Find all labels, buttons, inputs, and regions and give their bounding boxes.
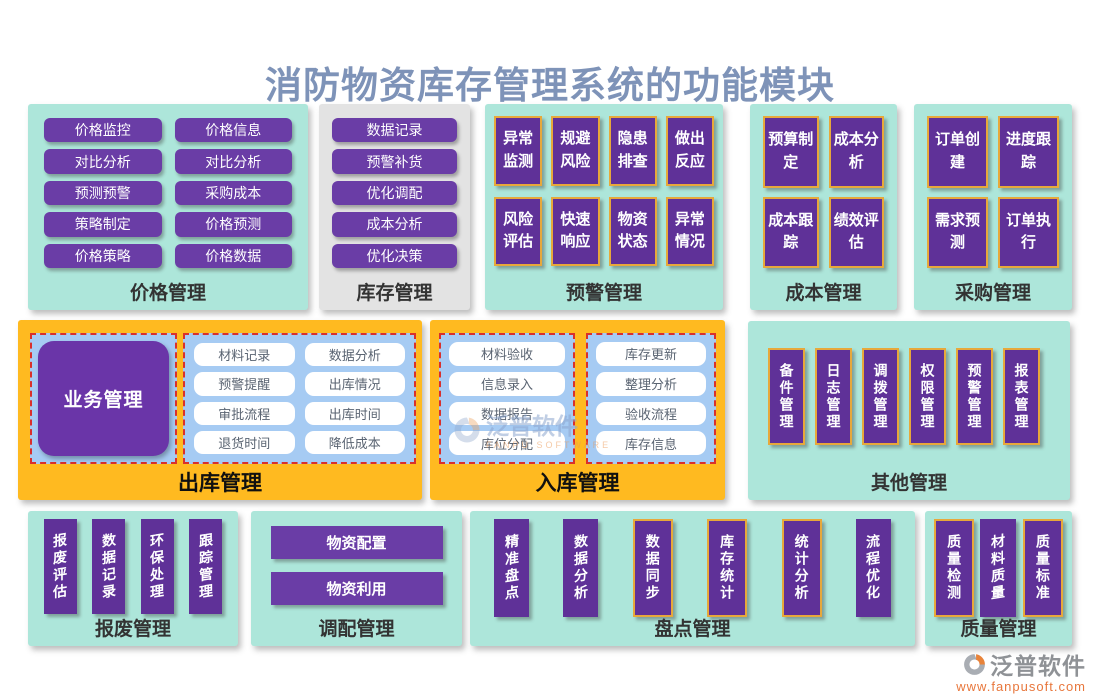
warning-box-grid: 异常监测 规避风险 隐患排查 做出反应 风险评估 快速响应 物资状态 异常情况 — [494, 116, 714, 266]
module-process-optimization: 流程优化 — [856, 519, 891, 617]
fanpu-logo-icon — [962, 652, 987, 677]
module-data-analysis: 数据分析 — [305, 343, 406, 366]
panel-label-inventory: 库存管理 — [319, 278, 470, 305]
module-make-response: 做出反应 — [666, 116, 714, 186]
diagram-canvas: 消防物资库存管理系统的功能模块 价格监控 价格信息 对比分析 对比分析 预测预警… — [0, 0, 1100, 700]
module-info-entry: 信息录入 — [449, 372, 565, 396]
logo-company-name: 泛普软件 — [990, 647, 1086, 681]
panel-label-allocation: 调配管理 — [251, 614, 462, 641]
module-reduce-cost: 降低成本 — [305, 431, 406, 454]
panel-outbound-management: 业务管理 材料记录 数据分析 预警提醒 出库情况 审批流程 出库时间 退货时间 … — [18, 320, 422, 500]
module-warning-reminder: 预警提醒 — [194, 372, 295, 395]
diagram-title: 消防物资库存管理系统的功能模块 — [0, 55, 1100, 109]
module-performance-evaluation: 绩效评估 — [829, 197, 885, 269]
panel-scrap-management: 报废评估 数据记录 环保处理 跟踪管理 报废管理 — [28, 511, 238, 646]
module-quality-standard: 质量标准 — [1023, 519, 1063, 617]
module-order-creation: 订单创建 — [927, 116, 988, 188]
panel-label-quality: 质量管理 — [925, 614, 1072, 641]
module-price-forecast: 价格预测 — [175, 212, 293, 236]
module-order-execution: 订单执行 — [998, 197, 1059, 269]
module-eco-treatment: 环保处理 — [141, 519, 174, 614]
module-outbound-situation: 出库情况 — [305, 372, 406, 395]
panel-warning-management: 异常监测 规避风险 隐患排查 做出反应 风险评估 快速响应 物资状态 异常情况 … — [485, 104, 723, 310]
panel-price-management: 价格监控 价格信息 对比分析 对比分析 预测预警 采购成本 策略制定 价格预测 … — [28, 104, 308, 310]
module-abnormal-situation: 异常情况 — [666, 197, 714, 267]
module-data-sync: 数据同步 — [633, 519, 673, 617]
allocation-bar-column: 物资配置 物资利用 — [251, 526, 462, 605]
panel-cost-management: 预算制定 成本分析 成本跟踪 绩效评估 成本管理 — [750, 104, 897, 310]
panel-allocation-management: 物资配置 物资利用 调配管理 — [251, 511, 462, 646]
inventory-button-column: 数据记录 预警补货 优化调配 成本分析 优化决策 — [332, 118, 457, 268]
fanpu-logo-row: 泛普软件 — [962, 647, 1086, 681]
module-data-record: 数据记录 — [332, 118, 457, 142]
panel-other-management: 备件管理 日志管理 调拨管理 权限管理 预警管理 报表管理 其他管理 — [748, 321, 1070, 500]
module-price-data: 价格数据 — [175, 244, 293, 268]
procurement-box-grid: 订单创建 进度跟踪 需求预测 订单执行 — [927, 116, 1059, 268]
outbound-button-grid: 材料记录 数据分析 预警提醒 出库情况 审批流程 出库时间 退货时间 降低成本 — [183, 333, 416, 464]
module-risk-assessment: 风险评估 — [494, 197, 542, 267]
module-quick-response: 快速响应 — [551, 197, 599, 267]
module-budget-making: 预算制定 — [763, 116, 819, 188]
module-material-record: 材料记录 — [194, 343, 295, 366]
module-bin-allocation: 库位分配 — [449, 431, 565, 455]
module-data-report: 数据报告 — [449, 402, 565, 426]
panel-stocktake-management: 精准盘点 数据分析 数据同步 库存统计 统计分析 流程优化 盘点管理 — [470, 511, 915, 646]
module-strategy-making: 策略制定 — [44, 212, 162, 236]
panel-label-cost: 成本管理 — [750, 278, 897, 305]
price-button-grid: 价格监控 价格信息 对比分析 对比分析 预测预警 采购成本 策略制定 价格预测 … — [44, 118, 292, 268]
module-warning-management: 预警管理 — [956, 348, 993, 445]
module-spare-parts-management: 备件管理 — [768, 348, 805, 445]
scrap-box-row: 报废评估 数据记录 环保处理 跟踪管理 — [36, 519, 230, 614]
module-hazard-inspection: 隐患排查 — [609, 116, 657, 186]
panel-label-warning: 预警管理 — [485, 278, 723, 305]
module-material-utilization: 物资利用 — [271, 572, 443, 605]
module-stock-update: 库存更新 — [596, 342, 706, 366]
module-cost-analysis-2: 成本分析 — [829, 116, 885, 188]
panel-label-procurement: 采购管理 — [914, 278, 1072, 305]
inbound-group-2: 库存更新 整理分析 验收流程 库存信息 — [586, 333, 716, 464]
panel-quality-management: 质量检测 材料质量 质量标准 质量管理 — [925, 511, 1072, 646]
module-material-acceptance: 材料验收 — [449, 342, 565, 366]
panel-inbound-management: 材料验收 信息录入 数据报告 库位分配 库存更新 整理分析 验收流程 库存信息 … — [430, 320, 725, 500]
module-quality-inspection: 质量检测 — [934, 519, 974, 617]
module-cost-tracking: 成本跟踪 — [763, 197, 819, 269]
panel-label-inbound: 入库管理 — [430, 467, 725, 497]
module-compare-analysis-1: 对比分析 — [44, 149, 162, 173]
panel-label-stocktake: 盘点管理 — [470, 614, 915, 641]
module-material-configuration: 物资配置 — [271, 526, 443, 559]
module-warning-restock: 预警补货 — [332, 149, 457, 173]
module-log-management: 日志管理 — [815, 348, 852, 445]
module-material-status: 物资状态 — [609, 197, 657, 267]
panel-label-price: 价格管理 — [28, 278, 308, 305]
module-tracking-management: 跟踪管理 — [189, 519, 222, 614]
panel-procurement-management: 订单创建 进度跟踪 需求预测 订单执行 采购管理 — [914, 104, 1072, 310]
module-progress-tracking: 进度跟踪 — [998, 116, 1059, 188]
module-material-quality: 材料质量 — [980, 519, 1016, 617]
module-price-info: 价格信息 — [175, 118, 293, 142]
module-outbound-time: 出库时间 — [305, 402, 406, 425]
panel-label-other: 其他管理 — [748, 468, 1070, 495]
module-statistic-analysis: 统计分析 — [782, 519, 822, 617]
module-risk-avoidance: 规避风险 — [551, 116, 599, 186]
business-management-box: 业务管理 — [38, 341, 169, 456]
module-stocktake-data-analysis: 数据分析 — [563, 519, 598, 617]
module-forecast-warning: 预测预警 — [44, 181, 162, 205]
module-approval-process: 审批流程 — [194, 402, 295, 425]
module-compare-analysis-2: 对比分析 — [175, 149, 293, 173]
module-anomaly-monitor: 异常监测 — [494, 116, 542, 186]
stocktake-box-row: 精准盘点 数据分析 数据同步 库存统计 统计分析 流程优化 — [494, 519, 891, 617]
other-box-row: 备件管理 日志管理 调拨管理 权限管理 预警管理 报表管理 — [768, 348, 1040, 445]
module-stock-info: 库存信息 — [596, 431, 706, 455]
module-demand-forecast: 需求预测 — [927, 197, 988, 269]
business-management-group: 业务管理 — [30, 333, 177, 464]
fanpu-logo: 泛普软件 www.fanpusoft.com — [956, 647, 1086, 694]
module-report-management: 报表管理 — [1003, 348, 1040, 445]
module-scrap-evaluation: 报废评估 — [44, 519, 77, 614]
panel-inventory-management: 数据记录 预警补货 优化调配 成本分析 优化决策 库存管理 — [319, 104, 470, 310]
module-optimize-decision: 优化决策 — [332, 244, 457, 268]
panel-label-outbound: 出库管理 — [18, 467, 422, 497]
module-price-monitor: 价格监控 — [44, 118, 162, 142]
module-cost-analysis: 成本分析 — [332, 212, 457, 236]
panel-label-scrap: 报废管理 — [28, 614, 238, 641]
quality-box-row: 质量检测 材料质量 质量标准 — [931, 519, 1066, 617]
cost-box-grid: 预算制定 成本分析 成本跟踪 绩效评估 — [763, 116, 884, 268]
module-price-strategy: 价格策略 — [44, 244, 162, 268]
module-precise-stocktake: 精准盘点 — [494, 519, 529, 617]
module-purchase-cost: 采购成本 — [175, 181, 293, 205]
inbound-group-1: 材料验收 信息录入 数据报告 库位分配 — [439, 333, 575, 464]
module-transfer-management: 调拨管理 — [862, 348, 899, 445]
module-return-time: 退货时间 — [194, 431, 295, 454]
module-scrap-data-record: 数据记录 — [92, 519, 125, 614]
module-permission-management: 权限管理 — [909, 348, 946, 445]
module-organize-analysis: 整理分析 — [596, 372, 706, 396]
logo-website-url: www.fanpusoft.com — [956, 679, 1086, 694]
module-acceptance-process: 验收流程 — [596, 402, 706, 426]
module-stock-statistics: 库存统计 — [707, 519, 747, 617]
module-optimize-allocation: 优化调配 — [332, 181, 457, 205]
